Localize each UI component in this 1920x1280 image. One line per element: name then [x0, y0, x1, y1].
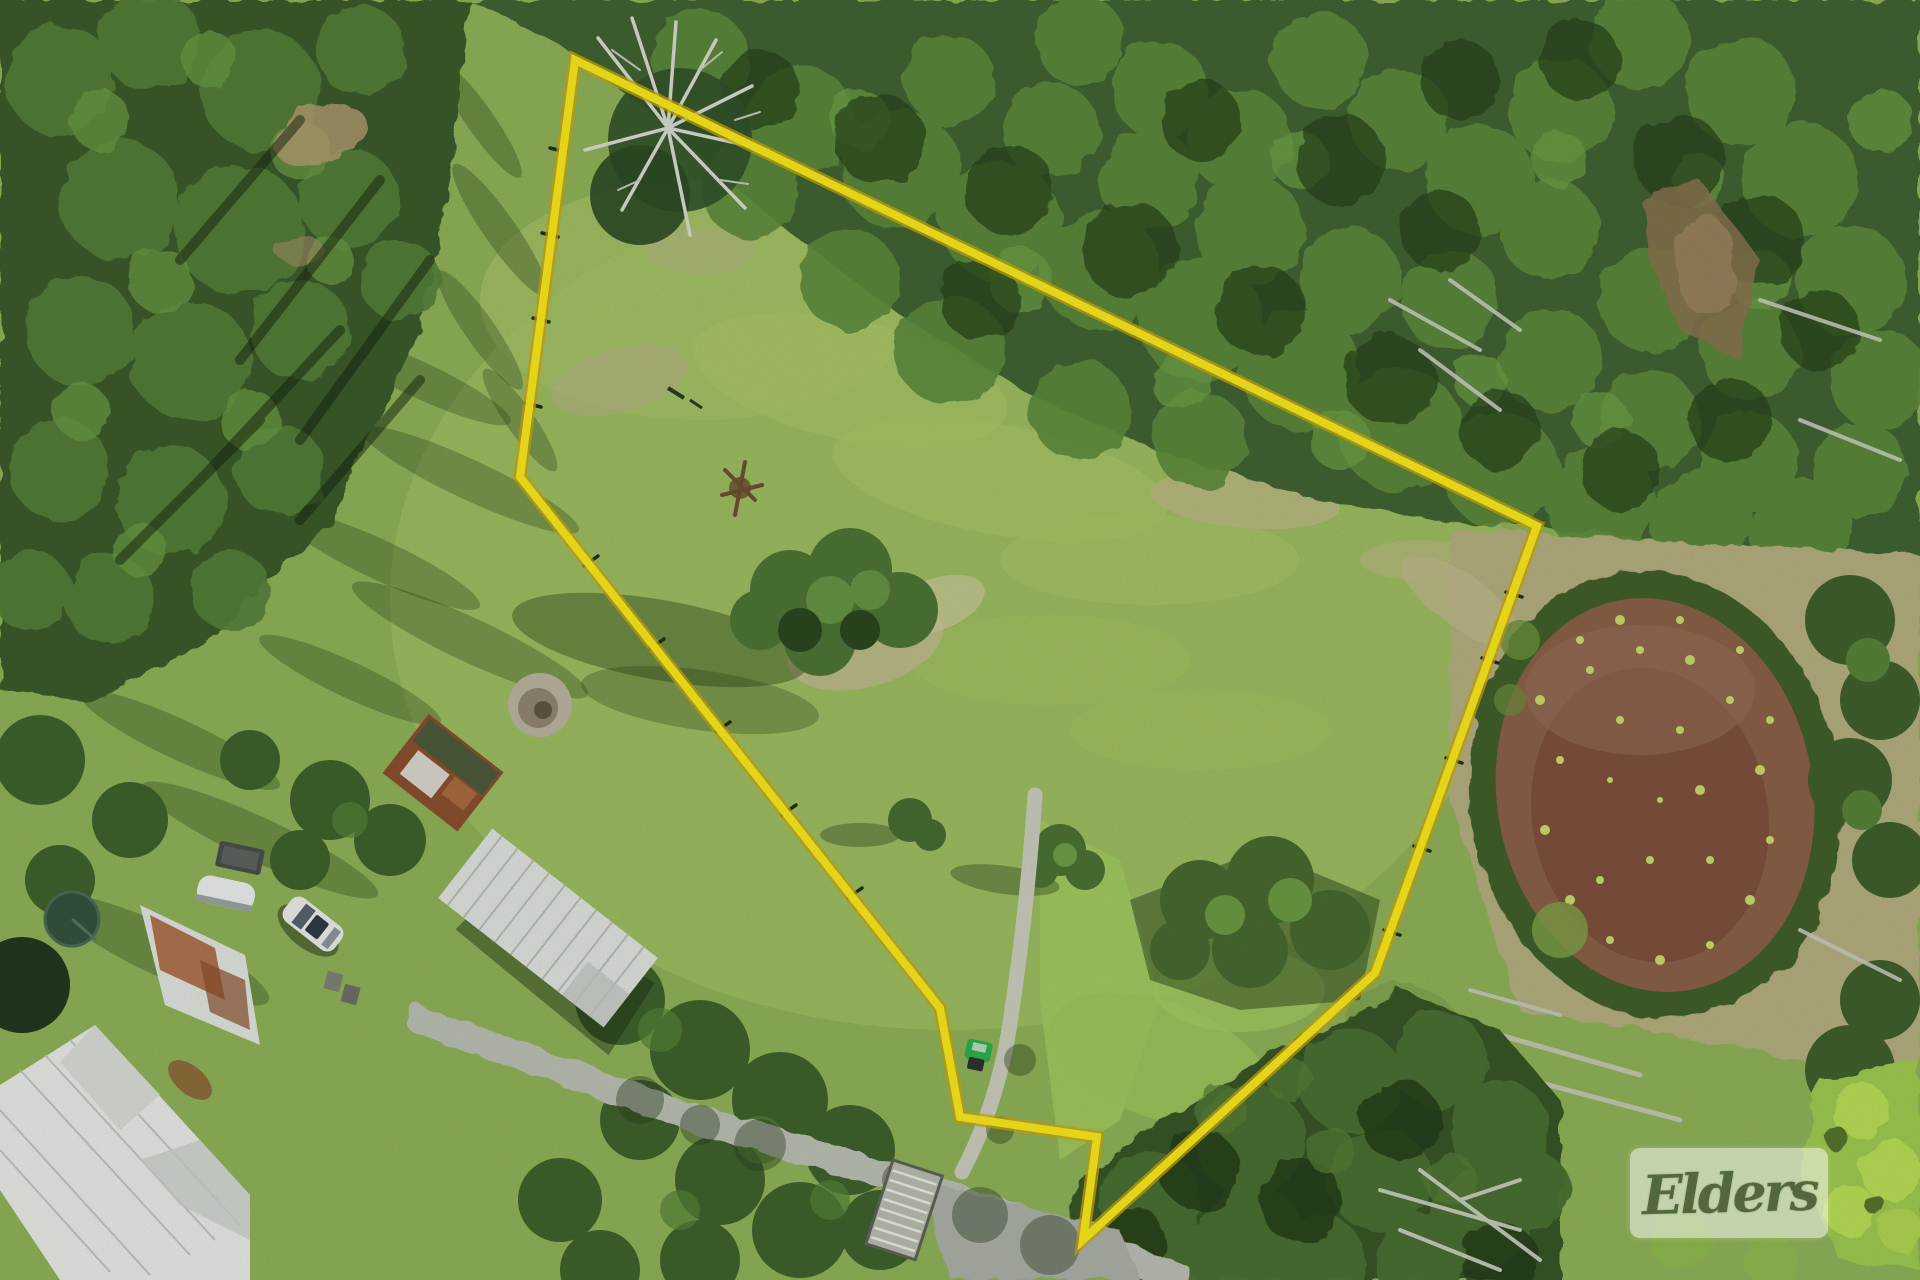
film-grain [0, 0, 1920, 1280]
elders-watermark: Elders [1630, 1148, 1828, 1238]
aerial-photo: Elders [0, 0, 1920, 1280]
photo-canvas [0, 0, 1920, 1280]
elders-logo-text: Elders [1641, 1164, 1817, 1223]
